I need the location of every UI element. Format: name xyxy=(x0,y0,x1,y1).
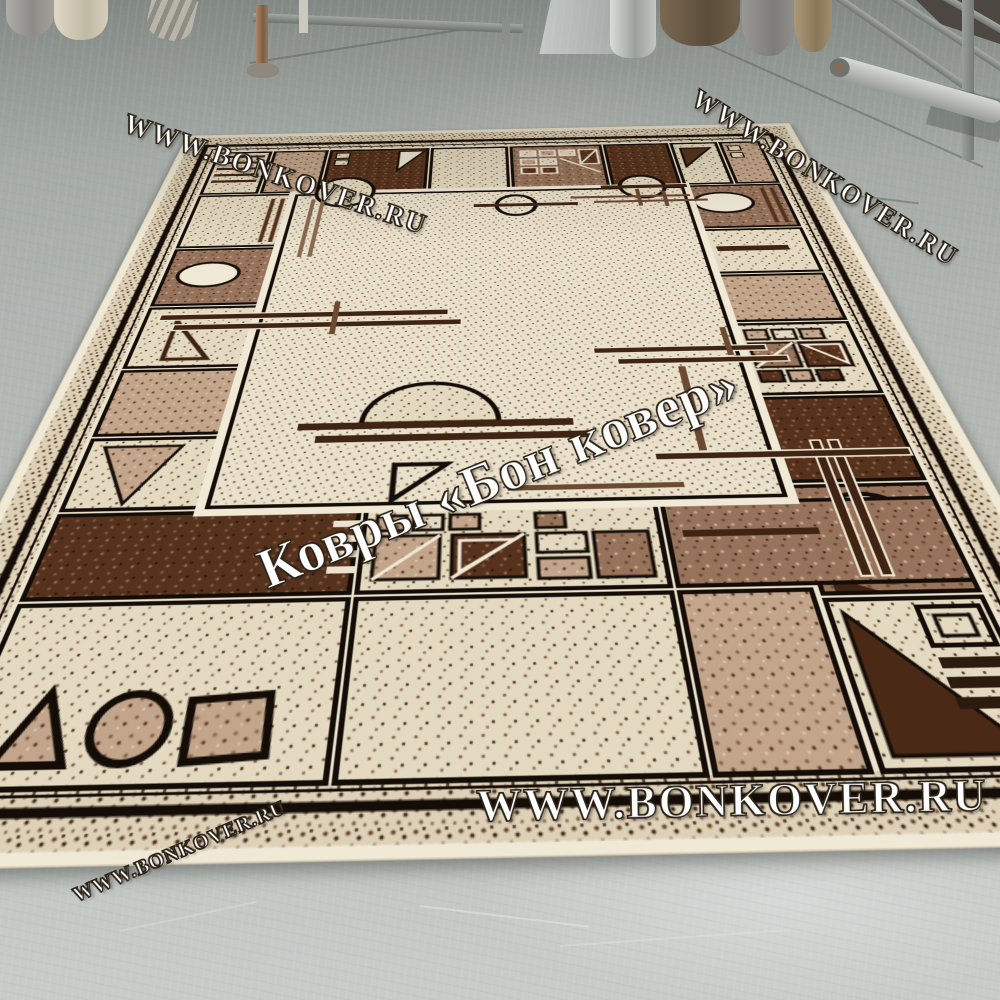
watermark-bottom: WWW.BONKOVER.RU xyxy=(476,769,988,832)
metal-stand-leg xyxy=(256,5,268,71)
metal-stand-foot xyxy=(247,63,279,78)
film-roll-standing xyxy=(610,0,656,58)
metal-stand-leg xyxy=(299,0,308,33)
photo-stage: WWW.BONKOVER.RU WWW.BONKOVER.RU Ковры «Б… xyxy=(0,0,1000,1000)
metal-stand-leg xyxy=(502,17,510,44)
